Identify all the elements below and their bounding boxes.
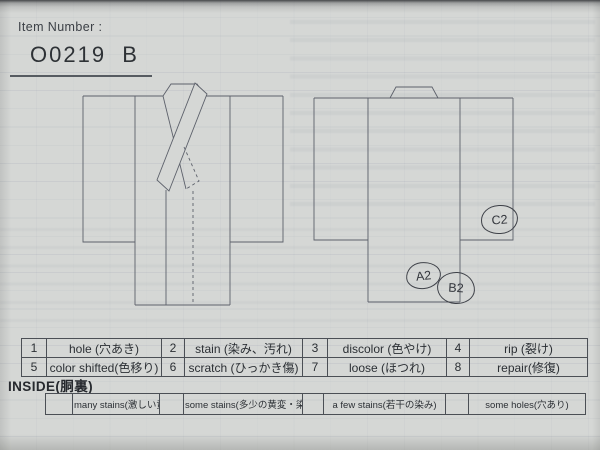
legend-code: 1	[22, 339, 47, 358]
legend-row-1: 1 hole (穴あき) 2 stain (染み、汚れ) 3 discolor …	[22, 339, 588, 358]
legend-code: 5	[22, 358, 47, 377]
legend-code: 7	[303, 358, 328, 377]
kimono-front-diagram	[83, 83, 283, 305]
legend-code: 3	[303, 339, 328, 358]
front-collar-hidden-edge	[184, 147, 199, 189]
legend-label: discolor (色やけ)	[328, 339, 447, 358]
front-right-sleeve	[230, 96, 283, 242]
legend-code: 2	[162, 339, 185, 358]
legend-label: rip (裂け)	[470, 339, 588, 358]
inside-check-cell	[446, 394, 469, 415]
annotation-label: B2	[448, 281, 464, 296]
inside-option-label: a few stains(若干の染み)	[324, 394, 446, 415]
inside-check-cell	[46, 394, 73, 415]
inside-check-cell	[303, 394, 324, 415]
back-collar-tab	[390, 87, 438, 98]
legend-label: hole (穴あき)	[47, 339, 162, 358]
legend-label: scratch (ひっかき傷)	[185, 358, 303, 377]
inside-condition-table: many stains(激しい黄変・染み) some stains(多少の黄変・…	[45, 393, 586, 415]
legend-label: color shifted(色移り)	[47, 358, 162, 377]
legend-label: stain (染み、汚れ)	[185, 339, 303, 358]
legend-label: loose (ほつれ)	[328, 358, 447, 377]
legend-code: 8	[447, 358, 470, 377]
inside-option-label: some stains(多少の黄変・染み)	[184, 394, 303, 415]
inside-option-label: many stains(激しい黄変・染み)	[73, 394, 160, 415]
back-left-sleeve	[314, 98, 368, 240]
annotation-label: C2	[491, 212, 508, 227]
legend-row-2: 5 color shifted(色移り) 6 scratch (ひっかき傷) 7…	[22, 358, 588, 377]
front-collar-left-band	[157, 83, 207, 191]
front-left-sleeve	[83, 96, 135, 242]
defect-legend-table: 1 hole (穴あき) 2 stain (染み、汚れ) 3 discolor …	[21, 338, 588, 377]
annotation-label: A2	[415, 268, 432, 284]
scanned-inspection-sheet: Item Number : O0219 B A2 B2	[0, 0, 600, 450]
inside-section-title: INSIDE(胴裏)	[8, 375, 93, 395]
legend-code: 4	[447, 339, 470, 358]
inside-option-label: some holes(穴あり)	[469, 394, 586, 415]
legend-code: 6	[162, 358, 185, 377]
legend-label: repair(修復)	[470, 358, 588, 377]
inside-row: many stains(激しい黄変・染み) some stains(多少の黄変・…	[46, 394, 586, 415]
inside-check-cell	[160, 394, 184, 415]
